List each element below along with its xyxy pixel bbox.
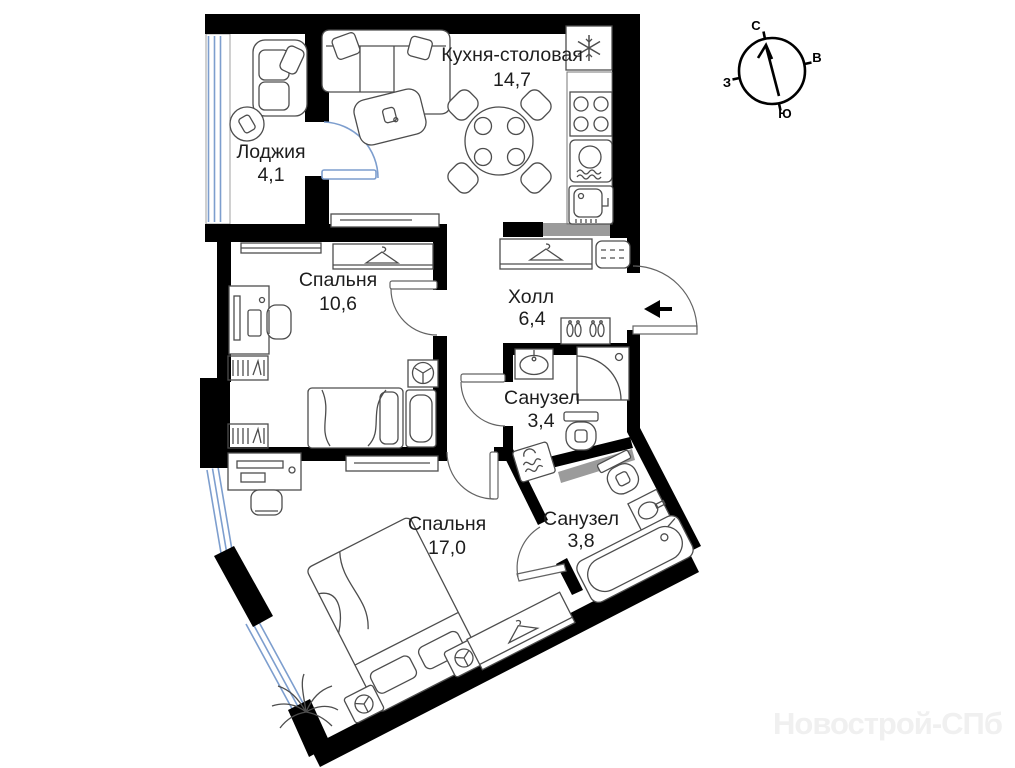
kitchen-label: Кухня-столовая <box>441 44 583 66</box>
desk-icon-2 <box>228 453 301 490</box>
compass-south-label: Ю <box>778 106 791 121</box>
stove-icon <box>570 92 612 136</box>
shoe-rack-icon <box>561 318 610 344</box>
toilet-icon-2 <box>597 450 645 499</box>
chair-icon <box>267 305 291 339</box>
radiator-icon <box>241 243 321 253</box>
kitchen-area: 14,7 <box>493 69 531 91</box>
desk-icon <box>229 286 269 354</box>
hall-cabinet-icon <box>596 241 630 268</box>
bed-icon <box>308 388 403 448</box>
dresser-icon <box>346 456 438 471</box>
floor-plan: Лоджия 4,1 Кухня-столовая 14,7 Спальня 1… <box>0 0 1015 768</box>
dining-table-icon <box>445 87 555 197</box>
bedroom-big-door-arc <box>447 452 498 499</box>
chair-icon-2 <box>251 490 282 515</box>
bedroom-small-area: 10,6 <box>319 293 357 315</box>
nightstand-icon <box>406 390 436 447</box>
compass-west-label: З <box>723 75 731 90</box>
bathroom-small-door-arc <box>461 374 505 426</box>
side-table-icon <box>230 107 264 141</box>
bathroom-sink-icon <box>515 349 553 379</box>
shower-icon <box>577 347 629 400</box>
kitchen-sink-icon <box>569 186 613 224</box>
sideboard-icon <box>331 214 439 227</box>
bedroom-big-area: 17,0 <box>428 537 466 559</box>
compass-north-label: С <box>751 18 761 33</box>
bathroom-small-area: 3,4 <box>527 410 554 432</box>
hall-area: 6,4 <box>518 308 545 330</box>
watermark: Новострой-СПб <box>773 706 1002 741</box>
compass-rose-icon: С В Ю З <box>723 18 822 121</box>
bathroom-small-label: Санузел <box>504 387 580 409</box>
tv-icon <box>408 360 438 387</box>
hall-wardrobe-icon <box>500 239 592 269</box>
loggia-area: 4,1 <box>257 164 284 186</box>
entrance-door-arc <box>633 266 697 334</box>
bedroom-big-label: Спальня <box>408 513 486 535</box>
entrance-arrow-icon <box>644 300 672 318</box>
bathroom-big-area: 3,8 <box>567 530 594 552</box>
armchair-icon <box>253 40 307 116</box>
toilet-icon <box>564 412 598 450</box>
bathroom-big-label: Санузел <box>543 508 619 530</box>
loggia-label: Лоджия <box>236 141 305 163</box>
coffee-table-icon <box>351 86 428 147</box>
bathroom-big-door-arc <box>517 527 566 581</box>
bookshelf-icon <box>228 356 268 448</box>
bedroom-small-label: Спальня <box>299 269 377 291</box>
hall-label: Холл <box>508 286 554 308</box>
compass-east-label: В <box>812 50 821 65</box>
wardrobe-icon <box>333 244 433 269</box>
washing-machine-icon <box>570 140 612 182</box>
bedroom-small-door-arc <box>390 281 437 335</box>
